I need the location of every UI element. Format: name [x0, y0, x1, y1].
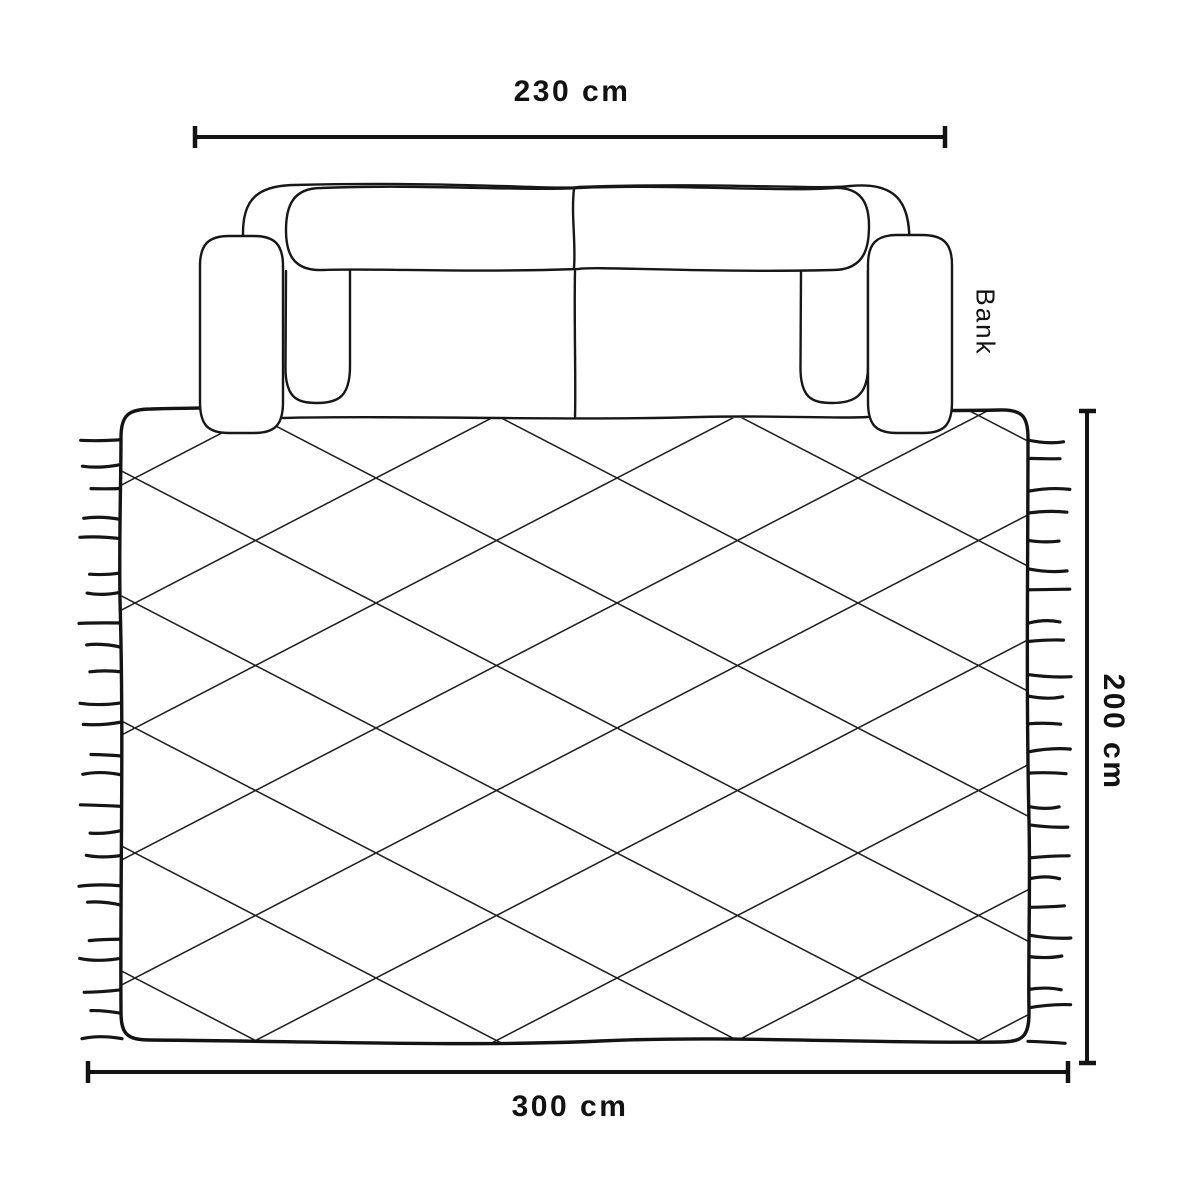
fringe-strand	[79, 885, 122, 886]
fringe-strand	[90, 830, 122, 833]
fringe-strand	[79, 623, 122, 624]
fringe-strand	[86, 855, 122, 857]
sofa-armrest-right	[868, 235, 952, 433]
sofa-seat-divider	[575, 271, 576, 418]
fringe-strand	[1028, 569, 1067, 572]
fringe-strand	[1028, 621, 1060, 624]
fringe-strand	[1028, 1005, 1071, 1008]
fringe-strand	[1028, 988, 1061, 990]
fringe-strand	[1028, 906, 1064, 908]
fringe-strand	[1028, 1041, 1065, 1043]
rug	[79, 400, 1071, 1055]
fringe-strand	[1028, 825, 1068, 828]
sofa-back-cushion	[286, 187, 869, 271]
sofa-label: Bank	[970, 288, 1001, 355]
fringe-strand	[91, 1011, 122, 1014]
fringe-strand	[90, 573, 122, 575]
fringe-strand	[84, 990, 122, 993]
dimension-label-rug-width: 300 cm	[512, 1090, 629, 1124]
dimension-rug-depth	[1079, 411, 1096, 1063]
sofa-back-cushion-divider	[573, 189, 574, 268]
fringe-strand	[1028, 806, 1059, 808]
sofa	[200, 184, 952, 433]
rug-fringe-right	[1028, 440, 1071, 1043]
fringe-strand	[80, 958, 122, 960]
fringe-strand	[80, 805, 122, 807]
fringe-strand	[83, 722, 122, 725]
fringe-strand	[91, 755, 122, 757]
fringe-strand	[87, 592, 122, 594]
sofa-armrest-left	[200, 236, 283, 433]
fringe-strand	[1028, 749, 1070, 752]
fringe-strand	[89, 939, 122, 940]
fringe-strand	[1028, 440, 1064, 443]
fringe-strand	[1028, 723, 1061, 724]
fringe-strand	[1028, 696, 1063, 698]
fringe-strand	[1028, 935, 1071, 938]
fringe-strand	[83, 773, 122, 775]
fringe-strand	[88, 902, 122, 905]
fringe-strand	[82, 464, 122, 467]
dimension-sofa-width	[195, 126, 945, 148]
fringe-strand	[90, 671, 122, 672]
fringe-strand	[1028, 489, 1070, 492]
fringe-strand	[1028, 640, 1064, 642]
fringe-strand	[80, 703, 122, 705]
fringe-strand	[1028, 773, 1066, 774]
fringe-strand	[81, 440, 122, 441]
fringe-strand	[1028, 511, 1067, 513]
diagram-canvas	[0, 0, 1200, 1200]
fringe-strand	[82, 1037, 122, 1039]
fringe-strand	[1028, 877, 1060, 879]
dimension-label-sofa-width: 230 cm	[514, 75, 631, 109]
dimension-rug-width	[88, 1061, 1068, 1083]
fringe-strand	[1028, 675, 1071, 677]
fringe-strand	[1028, 956, 1062, 958]
rug-fringe-left	[79, 440, 122, 1039]
fringe-strand	[84, 517, 122, 519]
fringe-strand	[1028, 540, 1059, 542]
dimension-label-rug-depth: 200 cm	[1096, 674, 1130, 791]
rug-sofa-size-guide: { "page": { "background_color": "#ffffff…	[0, 0, 1200, 1200]
fringe-strand	[1028, 589, 1070, 590]
fringe-strand	[80, 537, 122, 539]
fringe-strand	[1028, 856, 1069, 858]
rug-diamond-pattern	[110, 400, 1040, 1055]
fringe-strand	[87, 644, 122, 647]
